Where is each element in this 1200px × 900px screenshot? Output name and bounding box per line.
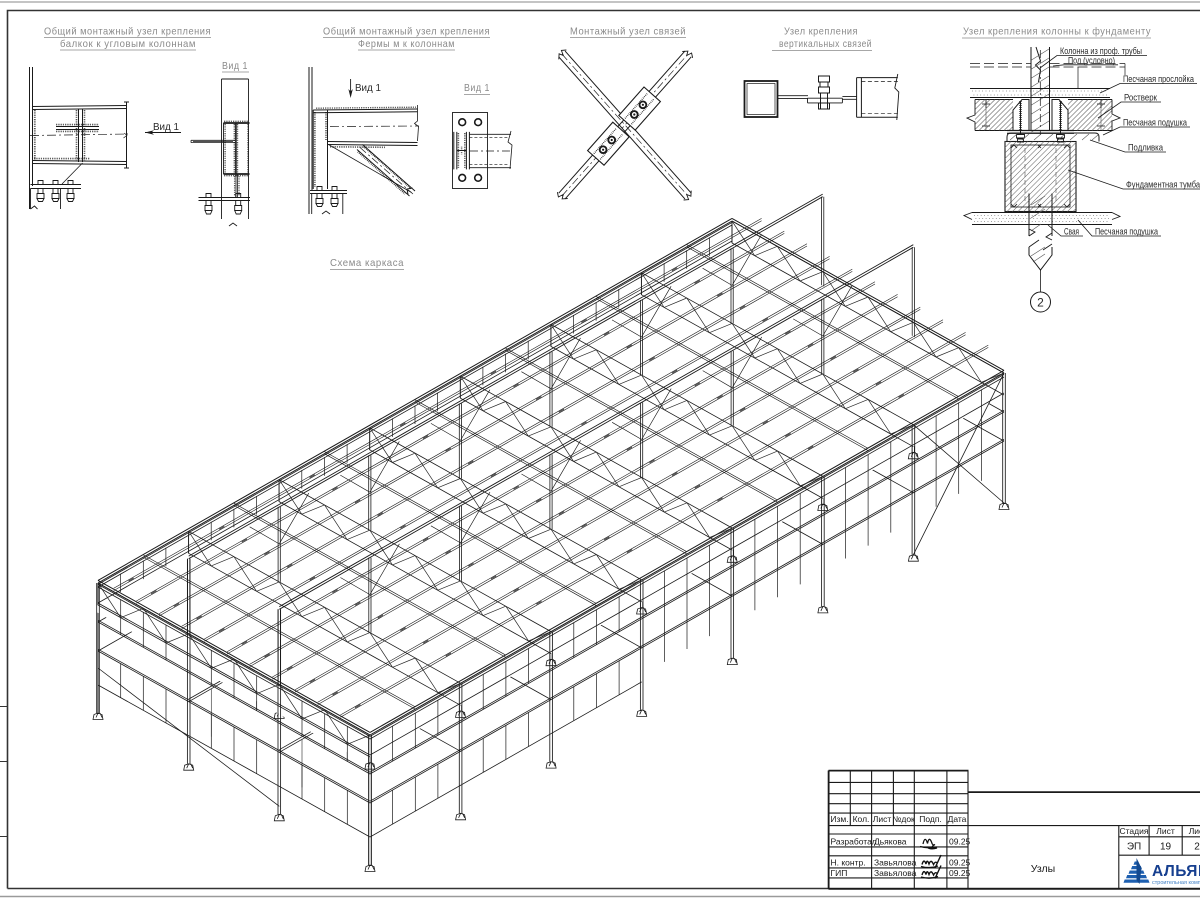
svg-text:Свая: Свая [1064,227,1079,237]
svg-text:Лист: Лист [873,814,892,824]
svg-text:балкок к угловым колоннам: балкок к угловым колоннам [60,38,196,50]
svg-text:Н. контр.: Н. контр. [831,858,866,868]
svg-text:строительная компания: строительная компания [1152,880,1200,886]
svg-text:Вид 1: Вид 1 [222,60,248,72]
svg-text:Вид 1: Вид 1 [464,82,490,94]
svg-text:19: 19 [1160,842,1172,853]
svg-text:Подливка: Подливка [1128,143,1163,153]
svg-text:Фермы м к колоннам: Фермы м к колоннам [358,38,455,50]
svg-text:Общий монтажный узел крепления: Общий монтажный узел крепления [323,26,490,38]
svg-text:Узел крепления: Узел крепления [784,26,858,38]
svg-text:Общий монтажный узел крепления: Общий монтажный узел крепления [44,26,211,38]
svg-text:2: 2 [1037,296,1044,310]
svg-text:Вид 1: Вид 1 [153,121,179,133]
svg-text:Дата: Дата [948,814,967,824]
svg-text:Колонна из проф. трубы: Колонна из проф. трубы [1060,46,1142,56]
svg-text:Лист: Лист [1156,826,1175,836]
svg-text:Узлы: Узлы [1031,863,1055,875]
svg-text:Стадия: Стадия [1120,826,1149,836]
svg-text:Фундаментная тумба: Фундаментная тумба [1126,180,1200,190]
svg-text:09.25: 09.25 [949,868,971,878]
svg-text:Завьялова: Завьялова [874,868,917,878]
svg-text:Завьялова: Завьялова [874,858,917,868]
svg-text:Кол.: Кол. [853,814,870,824]
svg-text:2: 2 [1194,842,1200,853]
svg-text:Пол (условно): Пол (условно) [1068,56,1115,66]
svg-text:вертикальных связей: вертикальных связей [779,38,872,50]
svg-text:Изм.: Изм. [830,814,848,824]
svg-text:Песчаная подушка: Песчаная подушка [1123,118,1187,128]
svg-text:ГИП: ГИП [831,868,848,878]
svg-text:Узел крепления колонны к фунда: Узел крепления колонны к фундаменту [963,26,1151,38]
svg-text:№док: №док [892,814,915,824]
svg-text:Лис: Лис [1189,826,1200,836]
svg-text:09.25: 09.25 [949,837,971,847]
svg-text:Монтажный узел связей: Монтажный узел связей [570,26,686,38]
svg-text:Подп.: Подп. [919,814,942,824]
svg-text:09.25: 09.25 [949,858,971,868]
svg-text:Схема каркаса: Схема каркаса [330,257,404,269]
svg-text:АЛЬЯН: АЛЬЯН [1152,863,1200,880]
svg-text:ЭП: ЭП [1127,842,1141,853]
svg-text:Вид 1: Вид 1 [355,82,381,94]
svg-text:Разработал: Разработал [831,837,877,847]
svg-text:Дьякова: Дьякова [874,837,907,847]
svg-text:Ростверк: Ростверк [1124,93,1157,103]
svg-text:Песчаная прослойка: Песчаная прослойка [1123,74,1194,84]
svg-text:Песчаная подушка: Песчаная подушка [1095,227,1158,237]
